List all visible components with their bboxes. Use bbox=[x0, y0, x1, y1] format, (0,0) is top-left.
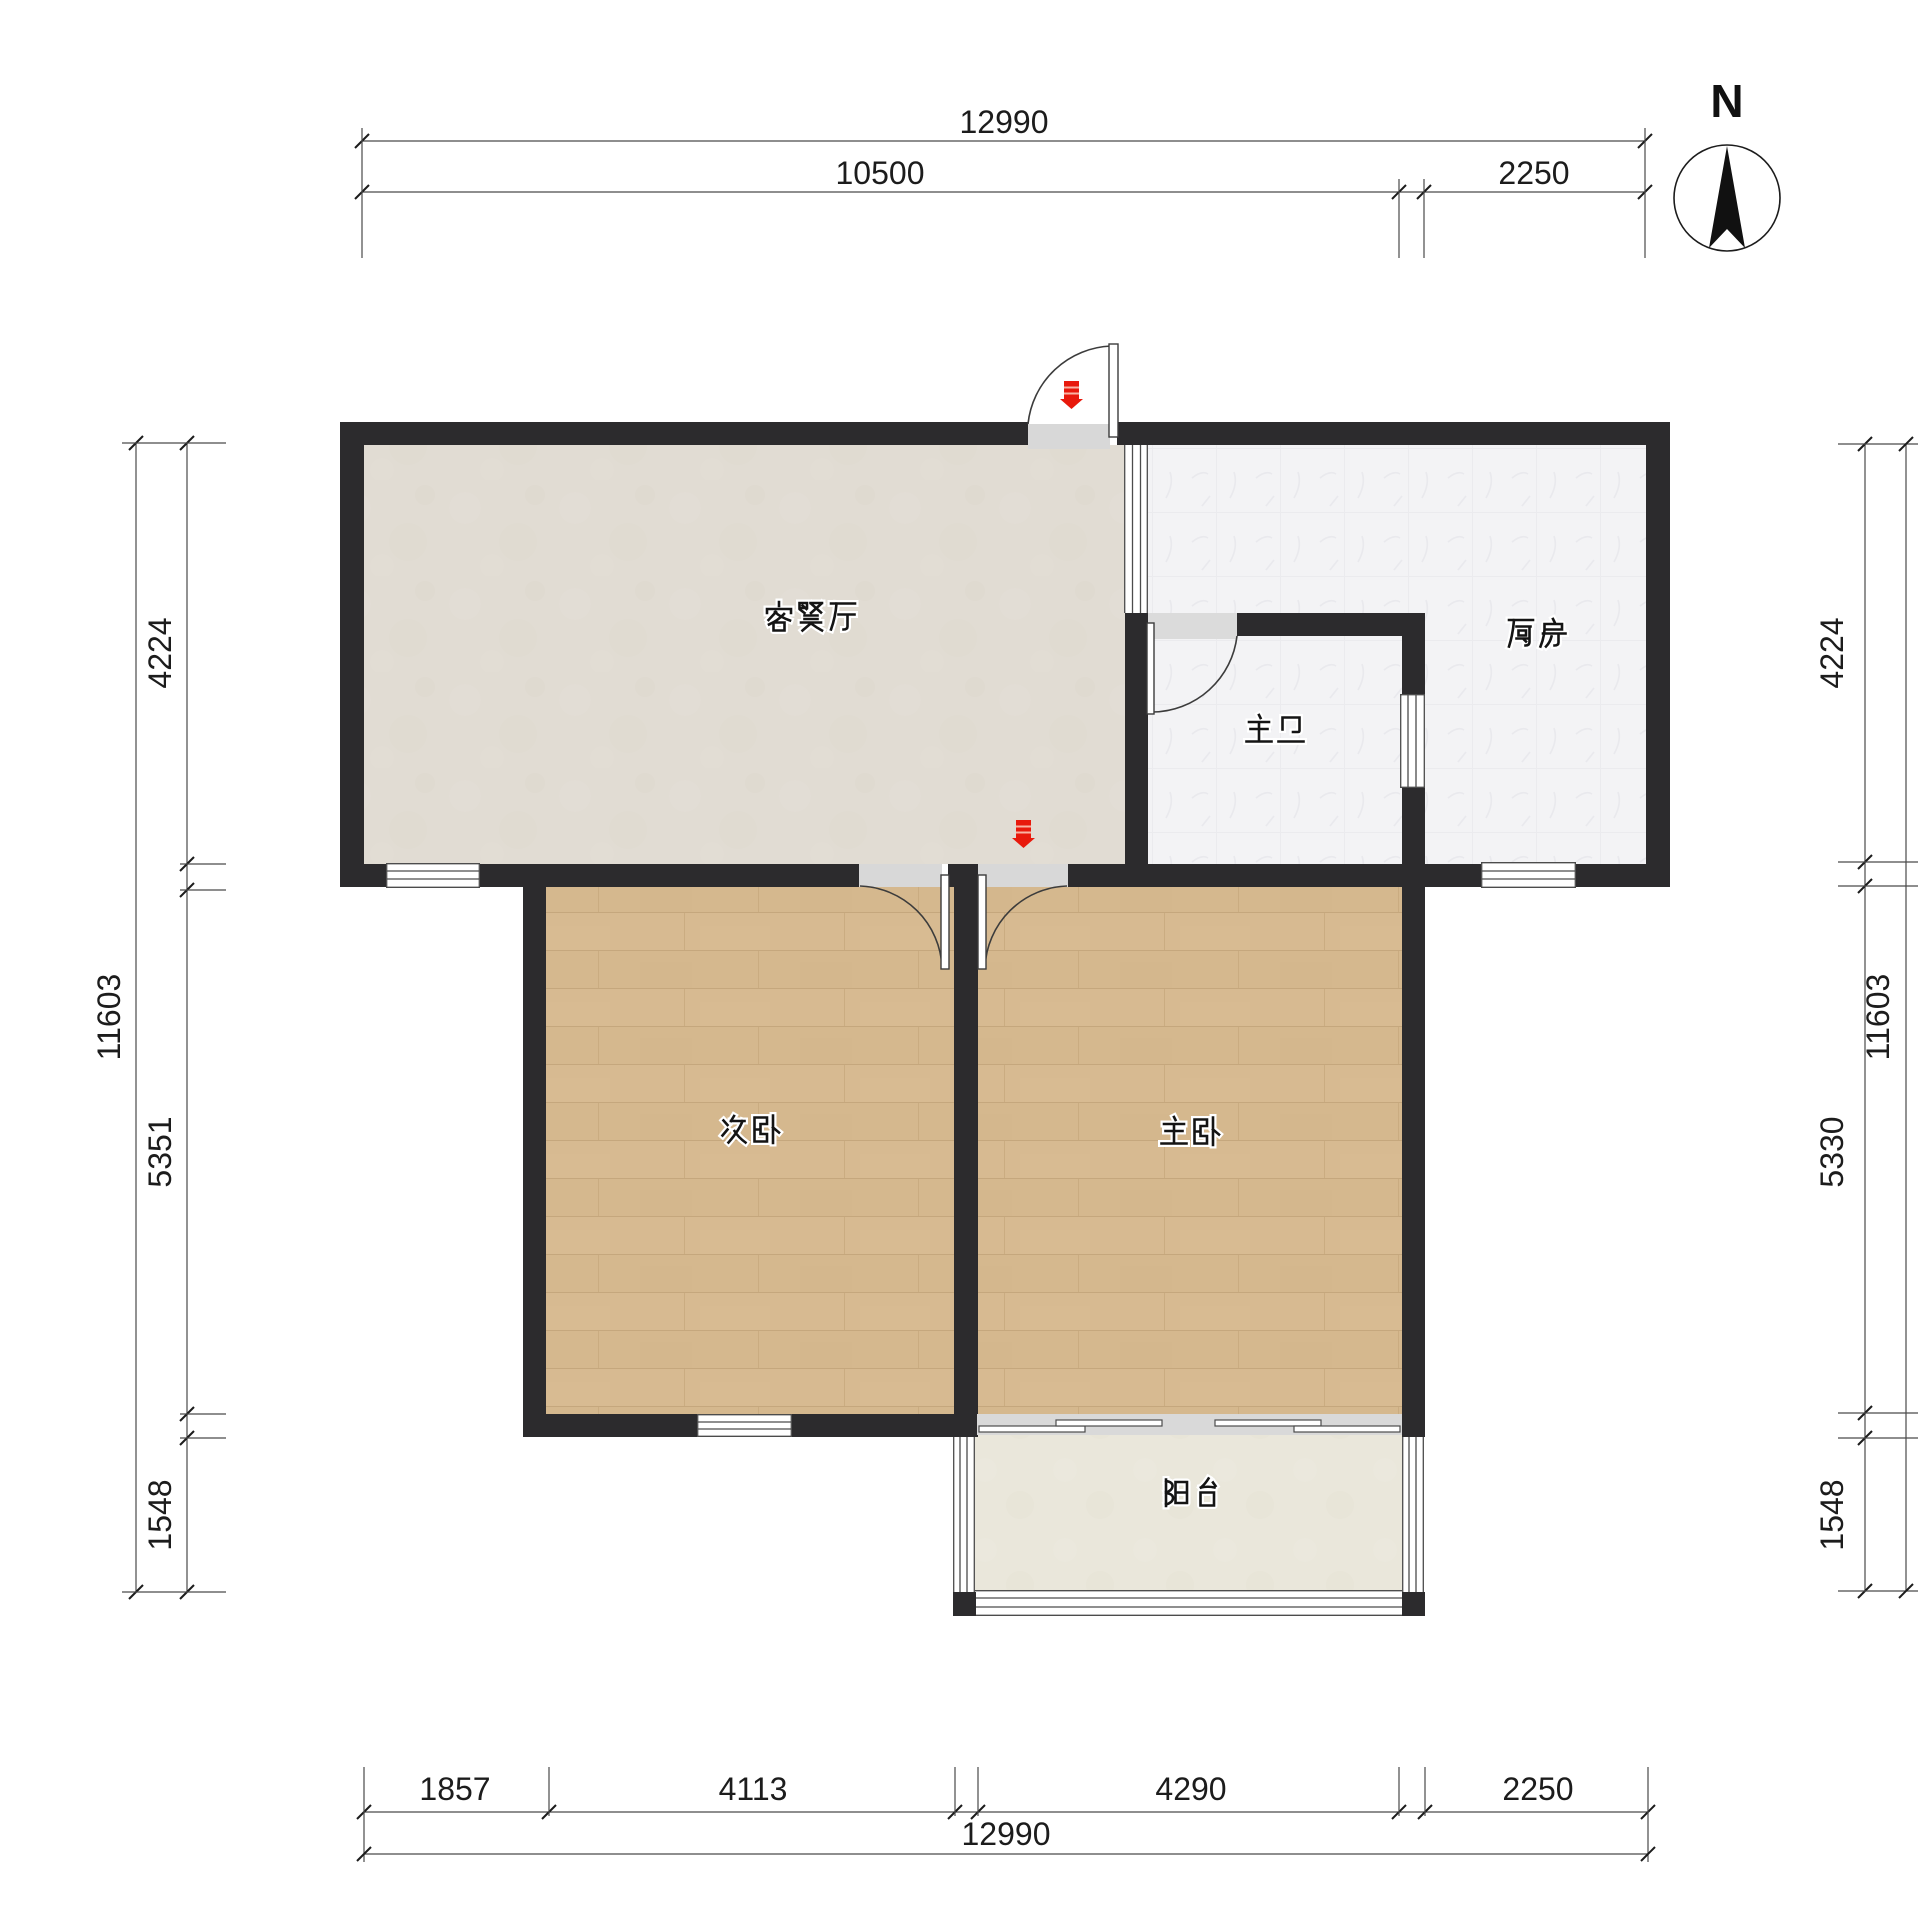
svg-text:1857: 1857 bbox=[419, 1771, 490, 1807]
svg-text:2250: 2250 bbox=[1498, 155, 1569, 191]
svg-text:4224: 4224 bbox=[142, 617, 178, 688]
svg-text:12990: 12990 bbox=[962, 1816, 1051, 1852]
svg-text:4224: 4224 bbox=[1814, 617, 1850, 688]
svg-text:1548: 1548 bbox=[1814, 1479, 1850, 1550]
svg-text:11603: 11603 bbox=[91, 974, 127, 1061]
svg-text:2250: 2250 bbox=[1502, 1771, 1573, 1807]
svg-text:N: N bbox=[1710, 75, 1743, 127]
svg-text:5330: 5330 bbox=[1814, 1116, 1850, 1187]
svg-text:4290: 4290 bbox=[1155, 1771, 1226, 1807]
svg-text:12990: 12990 bbox=[960, 104, 1049, 140]
svg-text:1548: 1548 bbox=[142, 1479, 178, 1550]
svg-text:10500: 10500 bbox=[836, 155, 925, 191]
svg-text:4113: 4113 bbox=[719, 1771, 788, 1807]
svg-text:11603: 11603 bbox=[1860, 974, 1896, 1061]
svg-text:5351: 5351 bbox=[142, 1116, 178, 1187]
